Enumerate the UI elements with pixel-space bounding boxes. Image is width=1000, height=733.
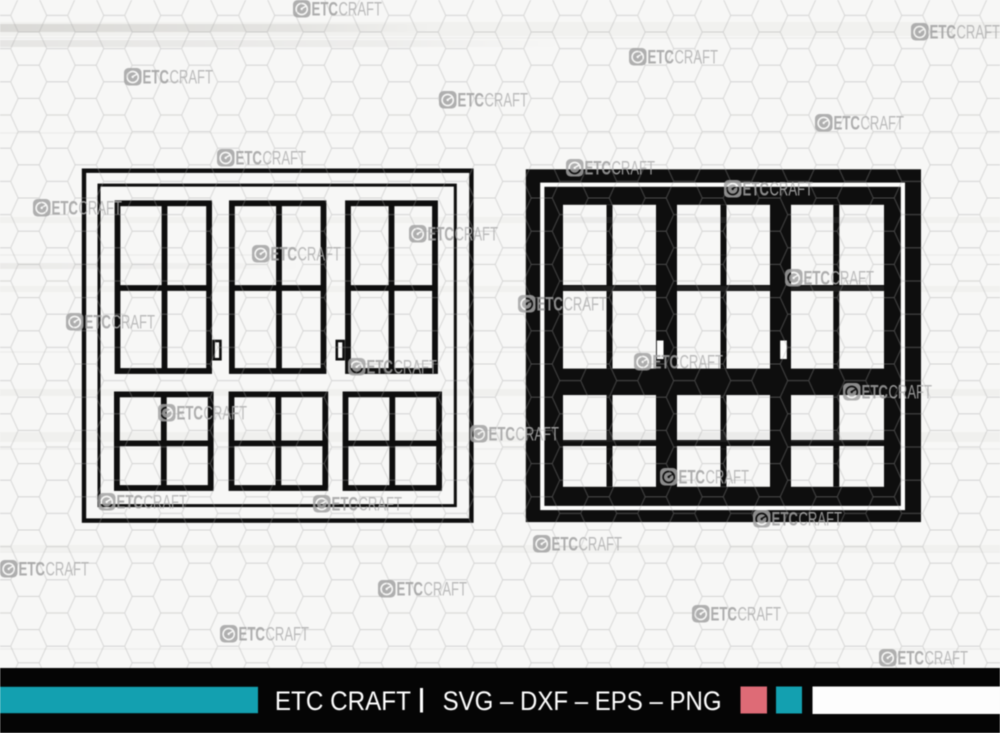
svg-text:SVG – DXF – EPS – PNG: SVG – DXF – EPS – PNG: [443, 686, 722, 716]
svg-text:ETC CRAFT: ETC CRAFT: [275, 686, 411, 716]
